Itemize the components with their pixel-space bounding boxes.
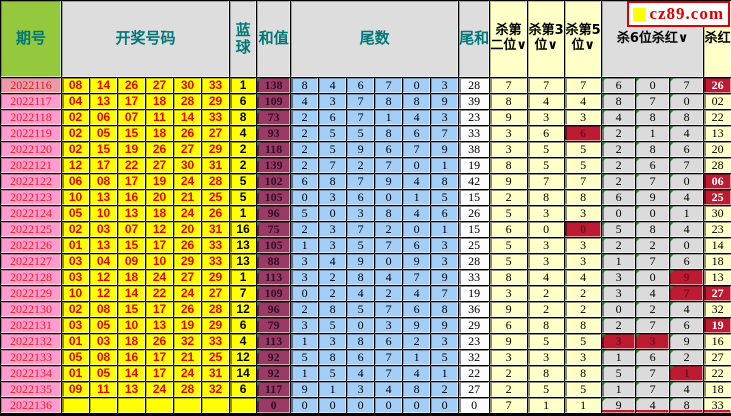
red-ball-cell [174,398,201,413]
kill3-cell: 3 [528,206,564,221]
tail-cell: 5 [319,142,346,157]
red-ball-cell: 26 [146,334,173,349]
red-ball-cell [118,398,145,413]
red-ball-cell: 10 [90,206,117,221]
kill5-cell: 7 [565,78,601,93]
tail-cell: 7 [403,270,430,285]
tail-cell: 2 [291,142,318,157]
tail-sum-cell: 28 [459,254,489,269]
red-ball-cell: 02 [62,142,89,157]
red-ball-cell: 19 [118,142,145,157]
tail-sum-cell: 33 [459,126,489,141]
blue-ball-cell: 7 [230,286,256,301]
period-cell: 2022116 [1,78,61,93]
kill6-cell: 0 [602,206,635,221]
tail-cell: 6 [403,238,430,253]
tail-cell: 4 [403,174,430,189]
red-ball-cell: 03 [90,222,117,237]
red-ball-cell: 13 [118,206,145,221]
kill-red-cell: 22 [704,110,731,125]
tail-sum-cell: 32 [459,350,489,365]
kill5-cell: 2 [565,302,601,317]
blue-ball-cell: 2 [230,158,256,173]
kill2-cell: 9 [490,302,527,317]
kill-red-cell: 16 [704,334,731,349]
red-ball-cell: 18 [118,334,145,349]
tail-sum-cell: 19 [459,286,489,301]
red-ball-cell: 25 [202,350,229,365]
kill6-cell: 3 [602,286,635,301]
blue-ball-cell: 1 [230,78,256,93]
red-ball-cell: 26 [174,126,201,141]
blue-ball-cell: 6 [230,318,256,333]
tail-cell: 9 [431,270,458,285]
red-ball-cell: 02 [62,302,89,317]
kill2-cell: 5 [490,206,527,221]
tail-cell: 4 [403,366,430,381]
red-ball-cell: 14 [118,286,145,301]
kill3-cell: 8 [528,366,564,381]
tail-cell: 3 [319,190,346,205]
tail-cell: 4 [403,286,430,301]
red-ball-cell: 07 [118,110,145,125]
red-ball-cell: 05 [90,318,117,333]
kill6-cell: 4 [636,286,669,301]
tail-cell: 7 [375,302,402,317]
sum-cell: 0 [257,398,290,413]
red-ball-cell: 03 [62,254,89,269]
tail-cell: 1 [431,366,458,381]
tail-cell: 2 [291,158,318,173]
red-ball-cell: 13 [146,318,173,333]
table-row: 20221360000000071194833 [1,398,731,413]
red-ball-cell: 21 [174,190,201,205]
kill3-cell: 3 [528,350,564,365]
tail-cell: 8 [347,270,374,285]
red-ball-cell: 20 [174,222,201,237]
red-ball-cell: 17 [146,350,173,365]
red-ball-cell: 09 [118,254,145,269]
table-row: 202213509111324283261179134822725517418 [1,382,731,397]
red-ball-cell: 27 [202,286,229,301]
tail-sum-cell: 29 [459,318,489,333]
sum-cell: 139 [257,158,290,173]
header-kill5[interactable]: 杀第5位∨ [565,1,601,77]
kill-red-cell: 27 [704,286,731,301]
red-ball-cell: 12 [90,286,117,301]
red-ball-cell: 14 [90,78,117,93]
period-cell: 2022132 [1,334,61,349]
tail-cell: 0 [347,398,374,413]
red-ball-cell: 28 [202,174,229,189]
tail-cell: 8 [375,126,402,141]
blue-ball-cell: 4 [230,126,256,141]
lottery-trend-page: cz89.com 期号 开奖号码 蓝球 和值 尾数 尾和 杀第二位∨ [0,0,731,416]
kill3-cell: 2 [528,302,564,317]
kill6-cell: 6 [636,350,669,365]
kill5-cell: 3 [565,350,601,365]
kill6-cell: 0 [636,78,669,93]
sum-cell: 92 [257,366,290,381]
kill6-cell: 6 [602,190,635,205]
table-row: 20221190205151826274932558673336621413 [1,126,731,141]
period-cell: 2022136 [1,398,61,413]
tail-cell: 3 [431,334,458,349]
kill6-cell: 5 [602,366,635,381]
header-blue: 蓝球 [230,1,256,77]
red-ball-cell: 16 [118,350,145,365]
tail-cell: 7 [347,94,374,109]
kill6-cell: 2 [636,302,669,317]
tail-cell: 1 [431,222,458,237]
tail-cell: 6 [375,142,402,157]
tail-cell: 0 [375,254,402,269]
period-cell: 2022130 [1,302,61,317]
kill5-cell: 1 [565,398,601,413]
red-ball-cell: 12 [62,158,89,173]
red-ball-cell [90,398,117,413]
red-ball-cell: 32 [202,382,229,397]
site-logo[interactable]: cz89.com [627,1,730,27]
red-ball-cell: 17 [118,174,145,189]
period-cell: 2022119 [1,126,61,141]
blue-ball-cell: 13 [230,254,256,269]
kill-red-cell: 18 [704,382,731,397]
period-cell: 2022123 [1,190,61,205]
kill6-cell: 4 [602,110,635,125]
red-ball-cell: 27 [174,270,201,285]
kill-red-cell: 20 [704,142,731,157]
kill6-cell: 8 [636,222,669,237]
header-sum: 和值 [257,1,290,77]
header-kill3[interactable]: 杀第3位∨ [528,1,564,77]
tail-cell: 3 [319,238,346,253]
red-ball-cell: 33 [202,110,229,125]
kill5-cell: 2 [565,286,601,301]
tail-sum-cell: 33 [459,270,489,285]
kill2-cell: 6 [490,318,527,333]
kill6-cell: 0 [670,238,703,253]
kill6-cell: 0 [636,270,669,285]
tail-cell: 3 [375,318,402,333]
tail-cell: 8 [403,94,430,109]
kill6-cell: 0 [602,302,635,317]
kill3-cell: 7 [528,174,564,189]
tail-cell: 7 [403,142,430,157]
kill6-cell: 1 [602,350,635,365]
kill6-cell: 2 [636,238,669,253]
red-ball-cell: 08 [90,174,117,189]
kill6-cell: 4 [670,302,703,317]
tail-cell: 5 [431,190,458,205]
blue-ball-cell: 6 [230,94,256,109]
kill5-cell: 4 [565,94,601,109]
red-ball-cell: 06 [62,174,89,189]
kill3-cell: 5 [528,382,564,397]
tail-cell: 7 [319,158,346,173]
red-ball-cell: 08 [90,350,117,365]
red-ball-cell [146,398,173,413]
tail-cell: 7 [431,126,458,141]
red-ball-cell: 30 [174,78,201,93]
tail-cell: 1 [319,382,346,397]
tail-cell: 3 [431,110,458,125]
kill6-cell: 2 [602,174,635,189]
tail-cell: 0 [347,318,374,333]
kill5-cell: 3 [565,206,601,221]
sum-cell: 92 [257,350,290,365]
tail-cell: 1 [291,334,318,349]
table-row: 202213002081517262812962857683692202432 [1,302,731,317]
kill5-cell: 6 [565,126,601,141]
tail-cell: 3 [319,222,346,237]
kill6-cell: 7 [636,318,669,333]
blue-ball-cell: 13 [230,238,256,253]
red-ball-cell: 14 [118,366,145,381]
kill3-cell: 0 [528,222,564,237]
kill6-cell: 3 [602,270,635,285]
tail-cell: 6 [347,78,374,93]
kill6-cell: 2 [602,158,635,173]
kill-red-cell: 22 [704,366,731,381]
red-ball-cell: 24 [174,366,201,381]
tail-cell: 7 [375,366,402,381]
tail-cell: 3 [319,334,346,349]
red-ball-cell: 10 [146,254,173,269]
tail-cell: 5 [319,126,346,141]
red-ball-cell: 26 [202,206,229,221]
red-ball-cell: 12 [90,270,117,285]
kill5-cell: 3 [565,254,601,269]
red-ball-cell: 07 [118,222,145,237]
kill6-cell: 7 [670,286,703,301]
table-row: 202211704131718282961094378893984487002 [1,94,731,109]
period-cell: 2022121 [1,158,61,173]
header-kill2[interactable]: 杀第二位∨ [490,1,527,77]
kill5-cell: 8 [565,366,601,381]
kill3-cell: 7 [528,78,564,93]
tail-sum-cell: 28 [459,78,489,93]
tail-cell: 7 [375,158,402,173]
kill5-cell: 5 [565,158,601,173]
tail-cell: 4 [375,270,402,285]
blue-ball-cell: 12 [230,350,256,365]
red-ball-cell: 33 [202,78,229,93]
red-ball-cell: 27 [174,142,201,157]
sum-cell: 96 [257,206,290,221]
kill3-cell: 8 [528,190,564,205]
table-row: 202211608142627303311388467032877760726 [1,78,731,93]
tail-cell: 2 [347,158,374,173]
red-ball-cell: 02 [62,222,89,237]
tail-sum-cell: 15 [459,190,489,205]
period-cell: 2022129 [1,286,61,301]
kill2-cell: 2 [490,382,527,397]
red-ball-cell: 17 [146,238,173,253]
period-cell: 2022125 [1,222,61,237]
tail-cell: 5 [347,126,374,141]
tail-cell: 8 [431,302,458,317]
tail-cell: 3 [291,318,318,333]
tail-sum-cell: 38 [459,142,489,157]
kill3-cell: 8 [528,318,564,333]
tail-cell: 0 [291,398,318,413]
tail-cell: 2 [431,382,458,397]
table-row: 202212206081719242851026879484297727006 [1,174,731,189]
kill6-cell: 8 [670,110,703,125]
kill3-cell: 3 [528,110,564,125]
red-ball-cell: 24 [146,270,173,285]
sum-cell: 73 [257,110,290,125]
table-row: 202212502030712203116752372011560058423 [1,222,731,237]
tail-cell: 5 [431,350,458,365]
period-cell: 2022133 [1,350,61,365]
red-ball-cell: 29 [202,94,229,109]
red-ball-cell: 08 [90,302,117,317]
kill2-cell: 3 [490,286,527,301]
red-ball-cell: 03 [90,334,117,349]
tail-cell: 1 [291,366,318,381]
red-ball-cell: 19 [174,318,201,333]
kill5-cell: 3 [565,110,601,125]
tail-cell: 4 [291,94,318,109]
tail-sum-cell: 23 [459,334,489,349]
kill6-cell: 8 [670,398,703,413]
red-ball-cell: 32 [174,334,201,349]
kill6-cell: 0 [670,174,703,189]
tail-cell: 6 [347,190,374,205]
header-numbers: 开奖号码 [62,1,229,77]
blue-ball-cell: 1 [230,270,256,285]
blue-ball-cell: 8 [230,110,256,125]
kill6-cell: 7 [636,382,669,397]
blue-ball-cell: 1 [230,206,256,221]
kill3-cell: 6 [528,126,564,141]
tail-cell: 5 [347,302,374,317]
red-ball-cell: 01 [62,334,89,349]
red-ball-cell: 05 [90,366,117,381]
red-ball-cell: 10 [62,190,89,205]
kill2-cell: 8 [490,270,527,285]
kill2-cell: 2 [490,190,527,205]
tail-cell: 1 [431,158,458,173]
red-ball-cell: 08 [62,78,89,93]
tail-cell: 3 [291,270,318,285]
tail-cell: 7 [347,222,374,237]
tail-cell: 0 [375,398,402,413]
kill5-cell: 3 [565,238,601,253]
red-ball-cell: 03 [62,318,89,333]
kill5-cell: 4 [565,270,601,285]
tail-cell: 3 [347,206,374,221]
kill6-cell: 2 [602,318,635,333]
tail-cell: 3 [347,382,374,397]
red-ball-cell: 15 [118,238,145,253]
red-ball-cell: 05 [90,126,117,141]
kill6-cell: 6 [670,254,703,269]
tail-cell: 1 [403,190,430,205]
tail-cell: 9 [403,254,430,269]
kill-red-cell: 02 [704,94,731,109]
red-ball-cell: 04 [90,254,117,269]
tail-cell: 8 [431,174,458,189]
tail-sum-cell: 23 [459,110,489,125]
table-row: 202212803121824272911133284793384430913 [1,270,731,285]
tail-cell: 7 [347,174,374,189]
kill5-cell: 7 [565,174,601,189]
period-cell: 2022135 [1,382,61,397]
tail-cell: 2 [319,286,346,301]
red-ball-cell: 17 [118,94,145,109]
kill2-cell: 8 [490,158,527,173]
table-row: 2022126011315172633131051357632553322014 [1,238,731,253]
tail-cell: 1 [291,238,318,253]
table-row: 202212910121422242771090242471932234727 [1,286,731,301]
tail-cell: 4 [375,382,402,397]
tail-cell: 0 [291,286,318,301]
kill6-cell: 4 [636,398,669,413]
kill3-cell: 3 [528,254,564,269]
tail-cell: 0 [319,206,346,221]
tail-cell: 3 [319,94,346,109]
tail-cell: 3 [431,254,458,269]
sum-cell: 105 [257,238,290,253]
kill6-cell: 4 [670,222,703,237]
tail-cell: 2 [291,110,318,125]
red-ball-cell: 26 [146,142,173,157]
kill2-cell: 5 [490,254,527,269]
red-ball-cell: 17 [90,158,117,173]
kill6-cell: 8 [636,110,669,125]
kill6-cell: 7 [636,174,669,189]
tail-cell: 6 [319,110,346,125]
tail-cell: 4 [347,286,374,301]
red-ball-cell: 14 [174,110,201,125]
tail-cell: 6 [347,350,374,365]
tail-cell: 2 [291,302,318,317]
kill2-cell: 3 [490,126,527,141]
blue-ball-cell: 12 [230,302,256,317]
blue-ball-cell: 4 [230,334,256,349]
red-ball-cell: 28 [174,94,201,109]
kill5-cell: 5 [565,142,601,157]
kill6-cell: 3 [602,334,635,349]
tail-cell: 7 [375,238,402,253]
kill-red-cell: 25 [704,190,731,205]
kill-red-cell: 13 [704,126,731,141]
kill6-cell: 7 [670,78,703,93]
period-cell: 2022131 [1,318,61,333]
period-cell: 2022126 [1,238,61,253]
red-ball-cell: 11 [90,382,117,397]
tail-cell: 5 [347,238,374,253]
tail-cell: 2 [319,270,346,285]
tail-cell: 7 [431,286,458,301]
red-ball-cell: 19 [146,174,173,189]
kill6-cell: 1 [636,126,669,141]
trend-table: 期号 开奖号码 蓝球 和值 尾数 尾和 杀第二位∨ 杀第3位∨ 杀第5位∨ 杀6… [0,0,731,414]
blue-ball-cell: 14 [230,366,256,381]
red-ball-cell: 28 [174,382,201,397]
tail-cell: 0 [403,78,430,93]
kill6-cell: 1 [670,206,703,221]
red-ball-cell: 15 [118,126,145,141]
red-ball-cell: 10 [62,286,89,301]
red-ball-cell: 24 [174,286,201,301]
red-ball-cell: 24 [174,206,201,221]
sum-cell: 102 [257,174,290,189]
tail-cell: 6 [403,302,430,317]
